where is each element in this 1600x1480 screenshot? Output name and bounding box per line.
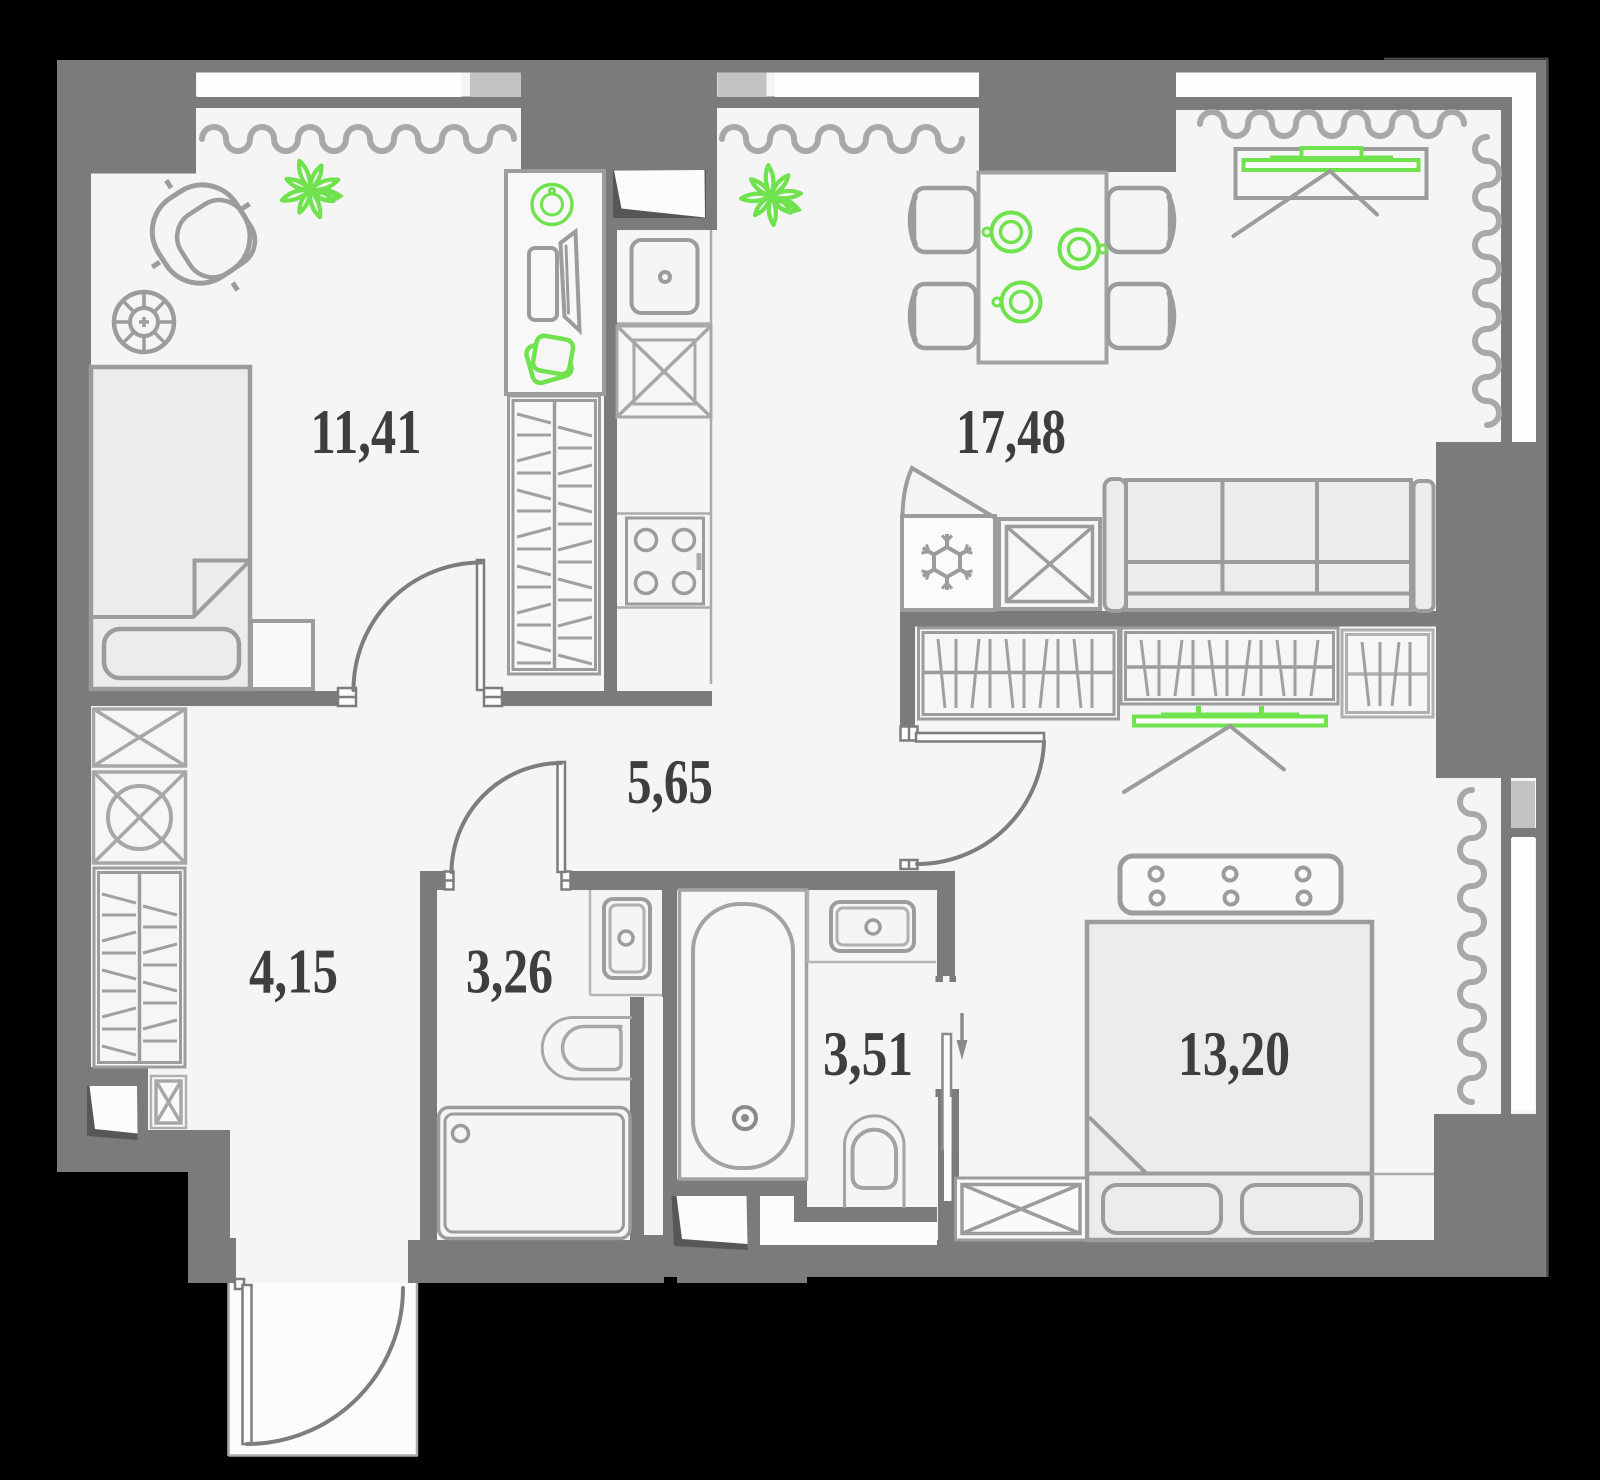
- svg-text:3,26: 3,26: [466, 937, 553, 1007]
- svg-text:3,51: 3,51: [823, 1019, 913, 1089]
- svg-text:4,15: 4,15: [249, 937, 338, 1007]
- svg-text:11,41: 11,41: [311, 397, 422, 467]
- svg-text:17,48: 17,48: [956, 397, 1066, 467]
- svg-text:13,20: 13,20: [1178, 1019, 1290, 1089]
- svg-text:5,65: 5,65: [627, 747, 713, 817]
